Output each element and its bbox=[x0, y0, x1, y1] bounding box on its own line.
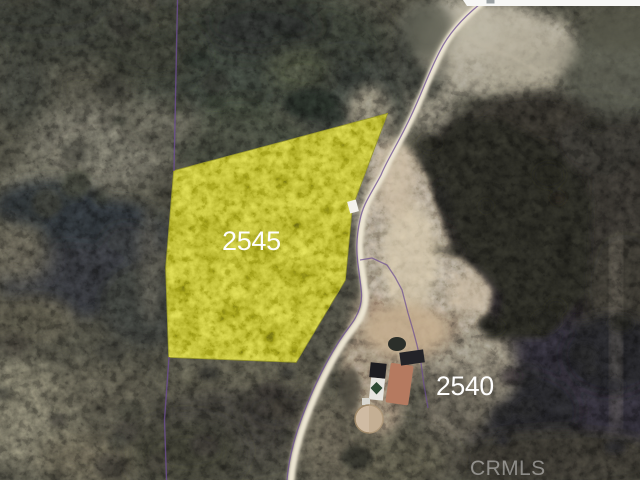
svg-text:2545: 2545 bbox=[222, 226, 281, 256]
svg-text:CRMLS: CRMLS bbox=[470, 457, 546, 480]
svg-text:2540: 2540 bbox=[436, 371, 494, 401]
